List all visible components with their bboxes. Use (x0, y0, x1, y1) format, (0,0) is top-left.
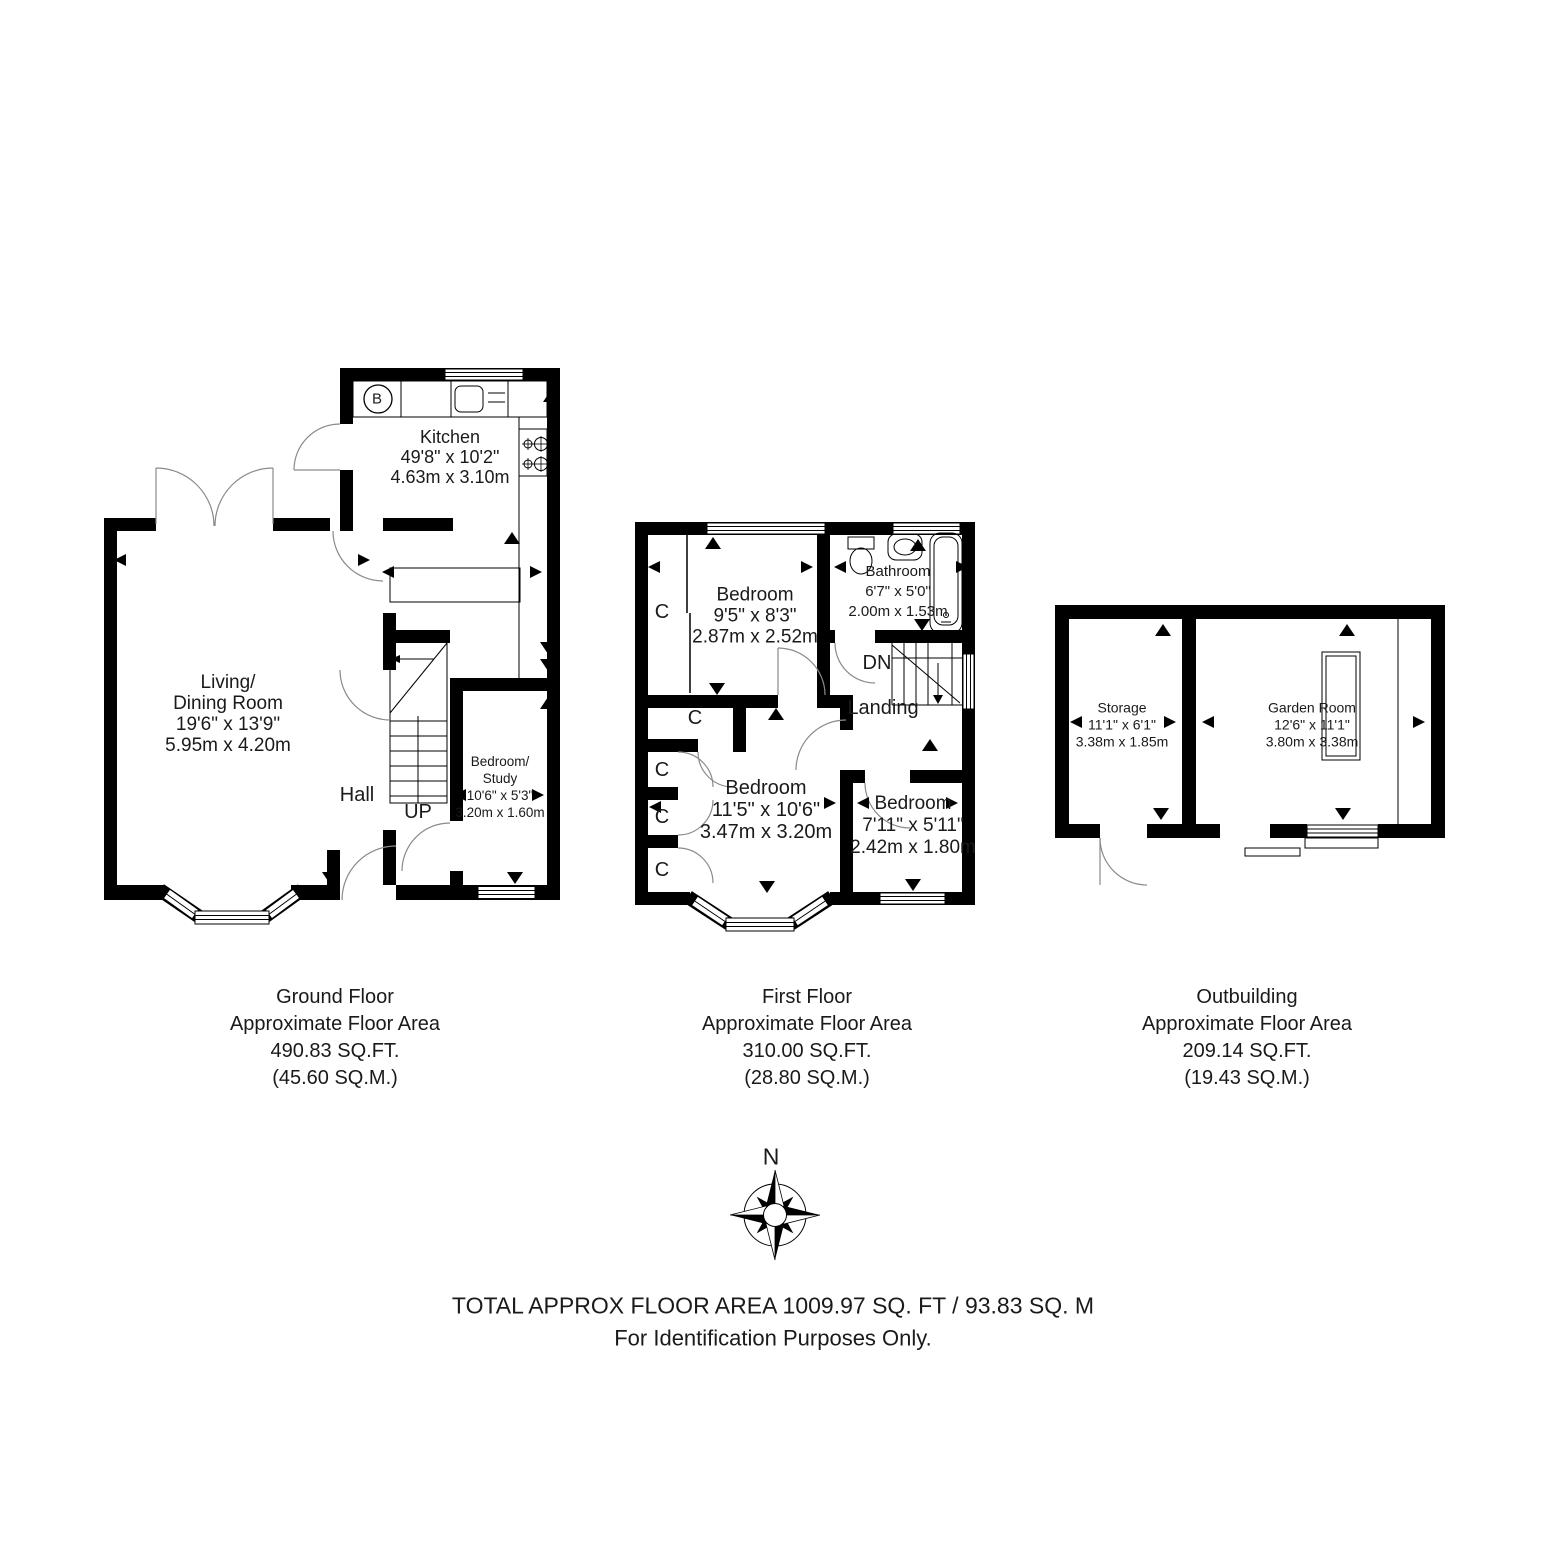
room-label-storage: Storage 11'1" x 6'1" 3.38m x 1.85m (1076, 700, 1169, 751)
hob-burners (522, 436, 549, 472)
hob-icon (519, 429, 547, 476)
room-label-bathroom: Bathroom 6'7" x 5'0" 2.00m x 1.53m (848, 562, 947, 622)
step (1245, 848, 1300, 856)
closet-label: C (655, 859, 669, 881)
compass-rose-icon (715, 1155, 835, 1275)
room-label-garden-room: Garden Room 12'6" x 11'1" 3.80m x 3.38m (1266, 700, 1359, 751)
stairs-down (892, 643, 962, 705)
room-label-bedroom-rear: Bedroom 9'5" x 8'3" 2.87m x 2.52m (692, 585, 818, 648)
stairs-down-label: DN (863, 652, 892, 674)
room-label-hall: Hall (340, 784, 374, 806)
toilet-icon (848, 537, 874, 549)
caption-first-floor: First Floor Approximate Floor Area 310.0… (702, 984, 912, 1092)
first-bay-window (688, 897, 832, 931)
room-label-bedroom-study: Bedroom/ Study 10'6" x 5'3" 3.20m x 1.60… (455, 753, 544, 821)
outbuilding-window (1307, 825, 1378, 837)
room-label-living-dining: Living/ Dining Room 19'6" x 13'9" 5.95m … (165, 672, 291, 756)
stairs-up (390, 641, 447, 803)
room-label-bedroom-side: Bedroom 7'11" x 5'11" 2.42m x 1.80m (850, 793, 976, 859)
closet-label: C (655, 601, 669, 623)
caption-ground-floor: Ground Floor Approximate Floor Area 490.… (230, 984, 440, 1092)
compass-north-label: N (763, 1144, 780, 1171)
caption-outbuilding: Outbuilding Approximate Floor Area 209.1… (1142, 984, 1352, 1092)
closet-partition (687, 535, 690, 693)
step (1305, 838, 1378, 848)
outbuilding-door-arc (1100, 838, 1147, 885)
room-label-kitchen: Kitchen 49'8" x 10'2" 4.63m x 3.10m (390, 427, 509, 487)
ground-door-arcs (156, 424, 450, 900)
sink-icon (455, 386, 483, 412)
room-label-bedroom-front: Bedroom 11'5" x 10'6" 3.47m x 3.20m (700, 777, 832, 843)
closet-label: C (655, 806, 669, 828)
room-label-landing: Landing (847, 697, 918, 719)
floorplan-page: N Kitchen 49'8" x 10'2" 4.63m x 3.10m Li… (0, 0, 1550, 1550)
ground-bay-window (160, 890, 302, 924)
closet-label: C (655, 759, 669, 781)
boiler-label: B (372, 391, 382, 408)
closet-label: C (688, 707, 702, 729)
stairs-up-label: UP (404, 801, 432, 823)
total-floor-area: TOTAL APPROX FLOOR AREA 1009.97 SQ. FT /… (452, 1293, 1094, 1320)
disclaimer-text: For Identification Purposes Only. (614, 1325, 932, 1352)
